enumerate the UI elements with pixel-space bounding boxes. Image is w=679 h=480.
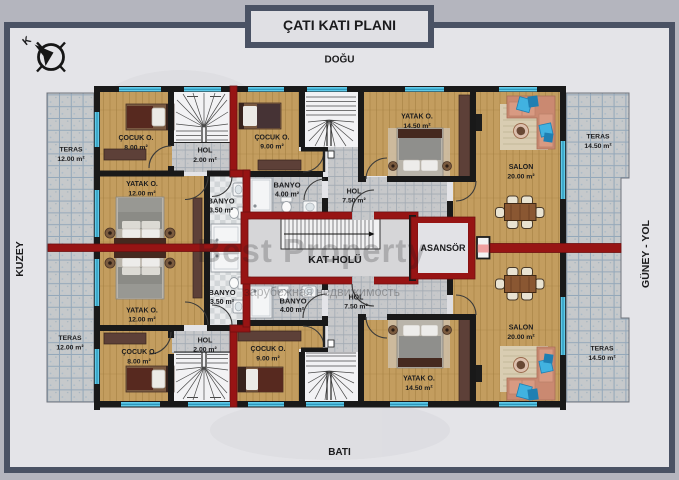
svg-text:ASANSÖR: ASANSÖR <box>420 243 466 253</box>
svg-text:HOL: HOL <box>347 189 363 196</box>
svg-text:TERAS: TERAS <box>59 147 83 154</box>
svg-text:зарубежная недвижимость: зарубежная недвижимость <box>244 285 400 299</box>
svg-text:8.00 m²: 8.00 m² <box>127 359 151 366</box>
svg-text:DOĞU: DOĞU <box>325 53 355 66</box>
svg-text:12.00 m²: 12.00 m² <box>128 317 156 324</box>
svg-text:4.00 m²: 4.00 m² <box>280 307 305 314</box>
svg-text:YATAK O.: YATAK O. <box>403 376 435 383</box>
svg-text:HOL: HOL <box>198 338 214 345</box>
svg-text:HOL: HOL <box>198 148 214 155</box>
svg-text:YATAK O.: YATAK O. <box>126 308 158 315</box>
svg-text:ÇATI KATI PLANI: ÇATI KATI PLANI <box>283 17 396 33</box>
svg-text:TERAS: TERAS <box>58 335 82 342</box>
svg-text:YATAK O.: YATAK O. <box>401 114 433 121</box>
svg-text:BANYO: BANYO <box>208 288 235 297</box>
svg-text:ÇOCUK O.: ÇOCUK O. <box>255 135 290 142</box>
svg-text:SALON: SALON <box>509 325 534 332</box>
svg-text:12.00 m²: 12.00 m² <box>128 191 156 198</box>
svg-text:9.00 m²: 9.00 m² <box>256 356 280 363</box>
svg-text:3.50 m²: 3.50 m² <box>209 208 234 215</box>
svg-text:ÇOCUK O.: ÇOCUK O. <box>251 346 286 353</box>
svg-text:4.00 m²: 4.00 m² <box>275 192 300 199</box>
svg-text:12.00 m²: 12.00 m² <box>57 156 85 163</box>
svg-text:Best Property: Best Property <box>197 232 426 269</box>
svg-text:YATAK O.: YATAK O. <box>126 181 158 188</box>
svg-text:20.00 m²: 20.00 m² <box>507 174 535 181</box>
svg-text:7.50 m²: 7.50 m² <box>342 198 366 205</box>
svg-text:2.00 m²: 2.00 m² <box>193 347 217 354</box>
svg-text:14.50 m²: 14.50 m² <box>405 385 433 392</box>
svg-text:12.00 m²: 12.00 m² <box>56 345 84 352</box>
svg-text:GÜNEY - YOL: GÜNEY - YOL <box>639 219 652 287</box>
svg-text:ÇOCUK O.: ÇOCUK O. <box>119 135 154 142</box>
svg-text:SALON: SALON <box>509 164 534 171</box>
svg-text:9.00 m²: 9.00 m² <box>260 144 284 151</box>
svg-text:14.50 m²: 14.50 m² <box>588 355 616 362</box>
svg-text:14.50 m²: 14.50 m² <box>584 143 612 150</box>
svg-text:TERAS: TERAS <box>586 134 610 141</box>
svg-text:KUZEY: KUZEY <box>14 241 26 277</box>
svg-text:20.00 m²: 20.00 m² <box>507 334 535 341</box>
svg-text:2.00 m²: 2.00 m² <box>193 157 217 164</box>
svg-text:14.50 m²: 14.50 m² <box>403 123 431 130</box>
svg-text:TERAS: TERAS <box>590 346 614 353</box>
svg-text:BANYO: BANYO <box>207 197 234 206</box>
svg-text:BATI: BATI <box>328 447 351 458</box>
svg-text:BANYO: BANYO <box>273 181 300 190</box>
svg-text:7.50 m²: 7.50 m² <box>344 304 368 311</box>
svg-text:8.00 m²: 8.00 m² <box>124 145 148 152</box>
svg-text:3.50 m²: 3.50 m² <box>210 299 235 306</box>
svg-text:ÇOCUK O.: ÇOCUK O. <box>122 349 157 356</box>
